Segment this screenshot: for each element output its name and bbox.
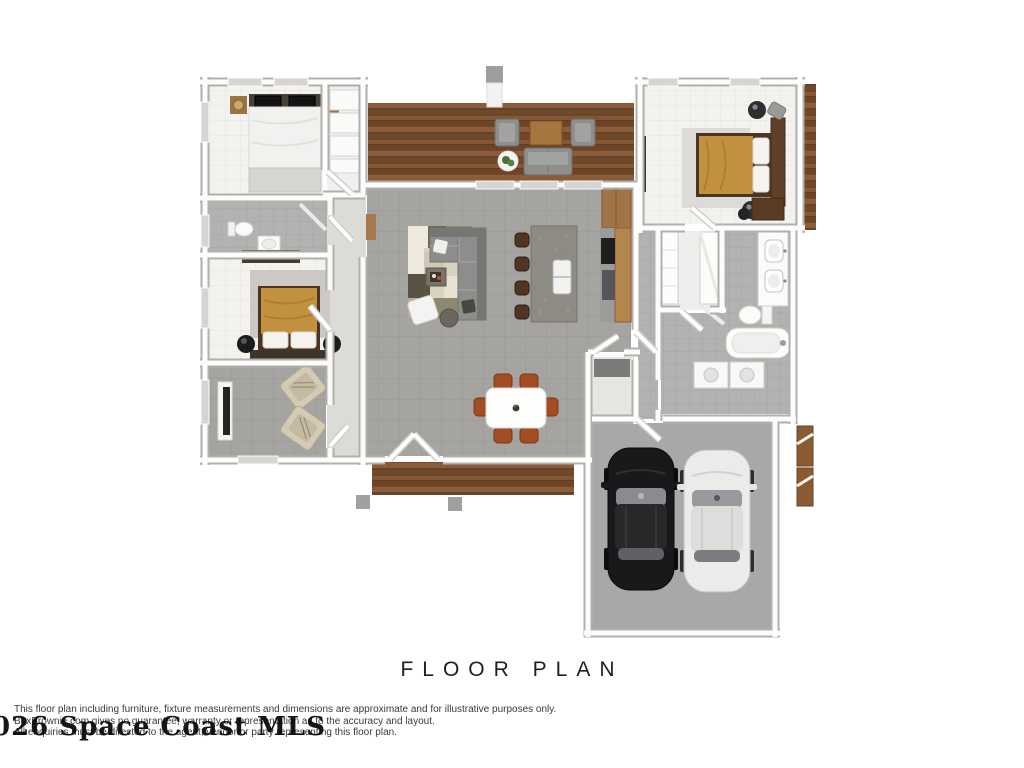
deck-post: [356, 495, 370, 509]
car-white: [677, 450, 757, 592]
deck-post-top: [486, 66, 503, 83]
garage: [601, 426, 813, 592]
toilet-tank: [762, 306, 772, 324]
side-table: [237, 335, 255, 353]
dining-chair: [520, 428, 538, 443]
tv: [223, 387, 230, 435]
deck-column: [487, 83, 502, 107]
bar-stool: [515, 281, 529, 295]
bar-stool: [515, 305, 529, 319]
dining-chair: [494, 428, 512, 443]
pouf: [440, 309, 458, 327]
bar-stool: [515, 233, 529, 247]
side-fence: [804, 84, 816, 230]
floor-plan-page: FLOOR PLAN This floor plan including fur…: [0, 0, 1024, 768]
toilet: [235, 222, 253, 236]
appliance: [602, 270, 615, 300]
stool: [738, 208, 750, 220]
dresser: [752, 198, 784, 220]
hall-cabinet: [366, 214, 376, 240]
toilet-tank: [228, 222, 235, 236]
cooktop: [601, 238, 615, 264]
car-black: [601, 448, 681, 590]
exterior-wood-door: [797, 426, 813, 506]
nightstand-round: [748, 101, 766, 119]
counter-top: [615, 228, 631, 322]
dining-chair: [520, 374, 538, 389]
bottom-deck: [372, 462, 574, 495]
deck-post: [448, 497, 462, 511]
outdoor-table: [530, 121, 562, 145]
floor-plan-rendering: [0, 0, 1024, 768]
toilet: [739, 306, 761, 324]
mls-watermark: 026 Space Coast MLS: [0, 712, 326, 742]
wardrobe-shelves: [330, 90, 360, 173]
pantry-shelf: [594, 359, 630, 377]
bed-white: [249, 94, 321, 192]
dining-chair: [494, 374, 512, 389]
page-title: FLOOR PLAN: [0, 658, 1024, 682]
bar-stool: [515, 257, 529, 271]
bed-gold: [250, 286, 328, 361]
